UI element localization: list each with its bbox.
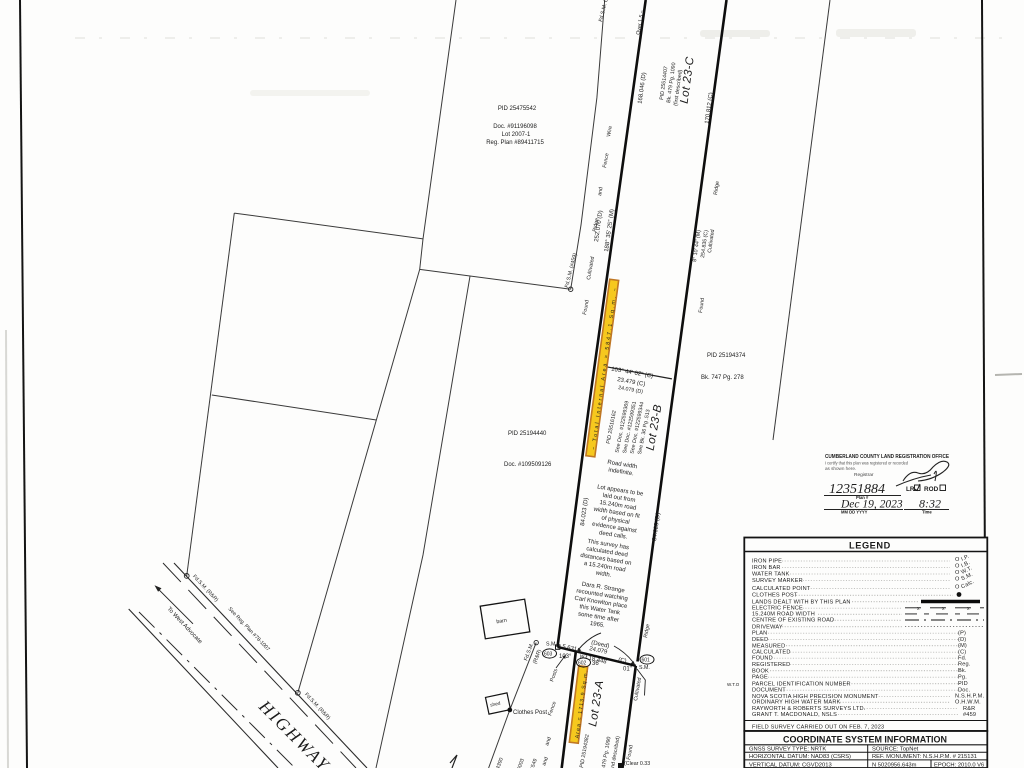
svg-text:PLAN: PLAN (752, 631, 767, 637)
svg-text:DEED: DEED (752, 637, 768, 643)
svg-text:O: O (955, 564, 960, 570)
svg-text:(P): (P) (958, 630, 966, 636)
svg-text:LR: LR (906, 486, 915, 493)
svg-text:BOOK: BOOK (752, 668, 769, 674)
svg-text:GNSS SURVEY TYPE: NRTK: GNSS SURVEY TYPE: NRTK (749, 746, 826, 752)
svg-text:CALCULATED POINT: CALCULATED POINT (752, 586, 811, 592)
svg-text:Reg. Plan #89411715: Reg. Plan #89411715 (486, 140, 544, 146)
svg-text:Fd.: Fd. (958, 655, 967, 661)
svg-text:Doc. #109509126: Doc. #109509126 (504, 462, 552, 468)
svg-text:Lot 2007-1: Lot 2007-1 (502, 132, 531, 138)
svg-text:SOURCE: TopNet: SOURCE: TopNet (872, 746, 919, 752)
svg-text:REF. MONUMENT: N.S.H.P.M. #: REF. MONUMENT: N.S.H.P.M. # 215131 (872, 754, 977, 760)
svg-text:PID 25194440: PID 25194440 (508, 431, 547, 437)
svg-text:LANDS DEALT WITH BY THIS: LANDS DEALT WITH BY THIS PLAN (752, 599, 851, 605)
svg-text:01": 01" (623, 667, 632, 673)
svg-text:Bk.: Bk. (958, 668, 967, 674)
svg-text:GRANT T. MACDONALD, NSLS: GRANT T. MACDONALD, NSLS (752, 712, 837, 718)
svg-text:ORDINARY HIGH WATER MARK: ORDINARY HIGH WATER MARK (752, 700, 841, 706)
svg-text:Pg.: Pg. (958, 674, 967, 680)
svg-text:(M): (M) (958, 643, 967, 649)
svg-text:ROD: ROD (924, 486, 939, 493)
svg-text:VERTICAL DATUM: CGVD2013: VERTICAL DATUM: CGVD2013 (749, 762, 832, 768)
svg-text:(D): (D) (958, 637, 966, 643)
svg-text:603: 603 (544, 652, 553, 658)
svg-text:FOUND: FOUND (752, 656, 773, 662)
svg-text:PAGE: PAGE (752, 675, 768, 681)
svg-text:WATER TANK: WATER TANK (752, 572, 790, 578)
svg-text:DOCUMENT: DOCUMENT (752, 688, 786, 694)
svg-text:LEGEND: LEGEND (849, 541, 891, 551)
svg-text:(Clear 0.33: (Clear 0.33 (624, 761, 650, 767)
svg-text:O: O (955, 585, 960, 591)
svg-text:HORIZONTAL DATUM: NAD83 (CS: HORIZONTAL DATUM: NAD83 (CSRS) (749, 754, 851, 760)
svg-text:COORDINATE SYSTEM INFORMATIO: COORDINATE SYSTEM INFORMATION (783, 733, 947, 744)
svg-text:CUMBERLAND COUNTY LAND REGISTR: CUMBERLAND COUNTY LAND REGISTRATION OFFI… (825, 454, 949, 460)
svg-text:#459: #459 (963, 712, 976, 718)
svg-text:IRON BAR: IRON BAR (752, 565, 781, 571)
svg-text:PID 25475542: PID 25475542 (498, 106, 537, 112)
svg-text:as shown here.: as shown here. (825, 466, 856, 471)
svg-text:CENTRE OF EXISTING ROAD: CENTRE OF EXISTING ROAD (752, 618, 834, 624)
svg-text:ELECTRIC FENCE: ELECTRIC FENCE (752, 606, 803, 612)
svg-text:W.T.O: W.T.O (727, 682, 740, 687)
svg-text:IRON PIPE: IRON PIPE (752, 559, 782, 565)
svg-text:Bk. 747 Pg. 278: Bk. 747 Pg. 278 (701, 375, 744, 381)
svg-text:Reg.: Reg. (958, 662, 971, 668)
svg-text:602: 602 (578, 661, 587, 667)
svg-text:EPOCH: 2010.0 V6: EPOCH: 2010.0 V6 (934, 762, 984, 768)
svg-text:CLOTHES POST: CLOTHES POST (752, 593, 798, 599)
svg-text:8:32: 8:32 (919, 497, 941, 511)
svg-text:PARCEL IDENTIFICATION NUMBER: PARCEL IDENTIFICATION NUMBER (752, 681, 851, 687)
svg-text:S.M.: S.M. (639, 665, 650, 671)
svg-text:O.H.W.M.: O.H.W.M. (955, 700, 981, 706)
svg-text:REGISTERED: REGISTERED (752, 662, 790, 668)
svg-text:MEASURED: MEASURED (752, 643, 785, 649)
svg-text:Clothes Post: Clothes Post (513, 710, 547, 716)
svg-text:Doc.: Doc. (958, 687, 971, 693)
svg-text:PID: PID (958, 681, 968, 687)
svg-text:S.M.: S.M. (546, 642, 557, 648)
svg-text:Registrar: Registrar (854, 472, 874, 478)
svg-text:601: 601 (642, 658, 651, 664)
svg-text:O: O (955, 577, 960, 583)
svg-text:Time: Time (922, 510, 932, 515)
svg-text:PID 25194374: PID 25194374 (707, 353, 746, 359)
svg-text:SURVEY MARKER: SURVEY MARKER (752, 578, 803, 584)
svg-text:N 5020956.643m: N 5020956.643m (872, 762, 917, 768)
svg-text:Doc. #91196098: Doc. #91196098 (493, 124, 537, 130)
svg-text:MM DD YYYY: MM DD YYYY (841, 510, 868, 515)
svg-text:36': 36' (592, 661, 600, 667)
svg-text:I certify that this plan was r: I certify that this plan was registered … (825, 461, 908, 466)
svg-text:O: O (955, 570, 960, 576)
svg-text:DRIVEWAY: DRIVEWAY (752, 624, 783, 630)
svg-text:O: O (955, 557, 960, 563)
svg-text:FIELD SURVEY CARRIED OUT O: FIELD SURVEY CARRIED OUT ON FEB. 7, 2023 (752, 724, 884, 730)
